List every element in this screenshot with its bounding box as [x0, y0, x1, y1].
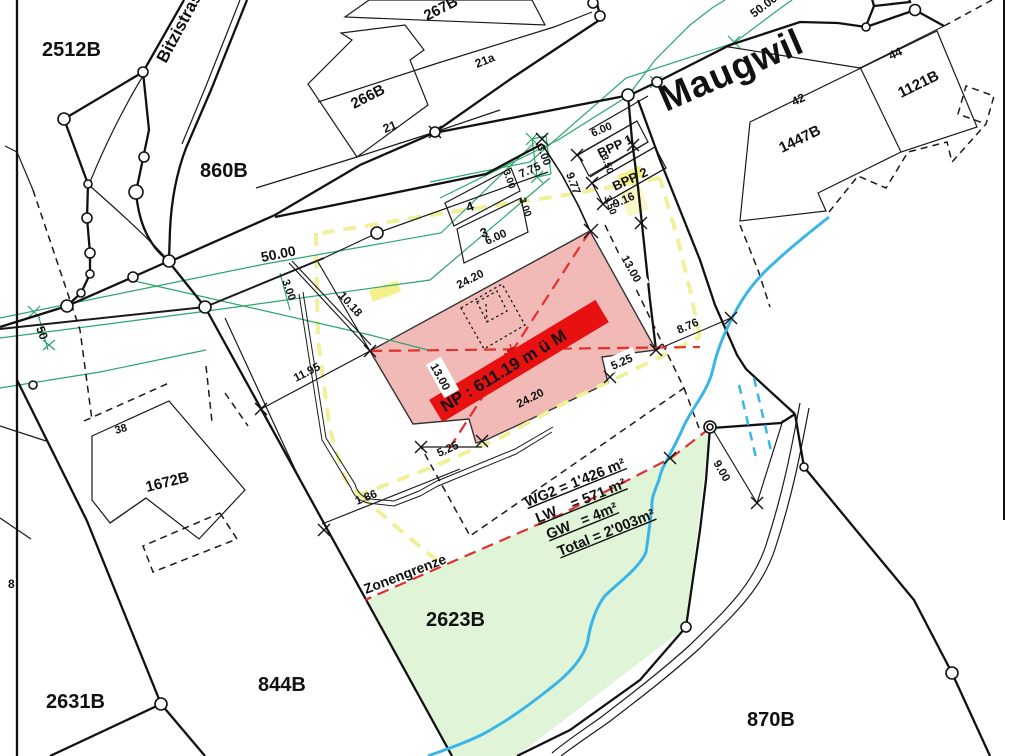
svg-text:8: 8	[8, 577, 15, 591]
svg-text:860B: 860B	[200, 160, 248, 182]
svg-text:870B: 870B	[747, 709, 795, 731]
svg-text:2623B: 2623B	[426, 609, 485, 631]
svg-text:844B: 844B	[258, 674, 306, 696]
svg-text:2512B: 2512B	[42, 39, 101, 61]
svg-text:2631B: 2631B	[46, 691, 105, 713]
